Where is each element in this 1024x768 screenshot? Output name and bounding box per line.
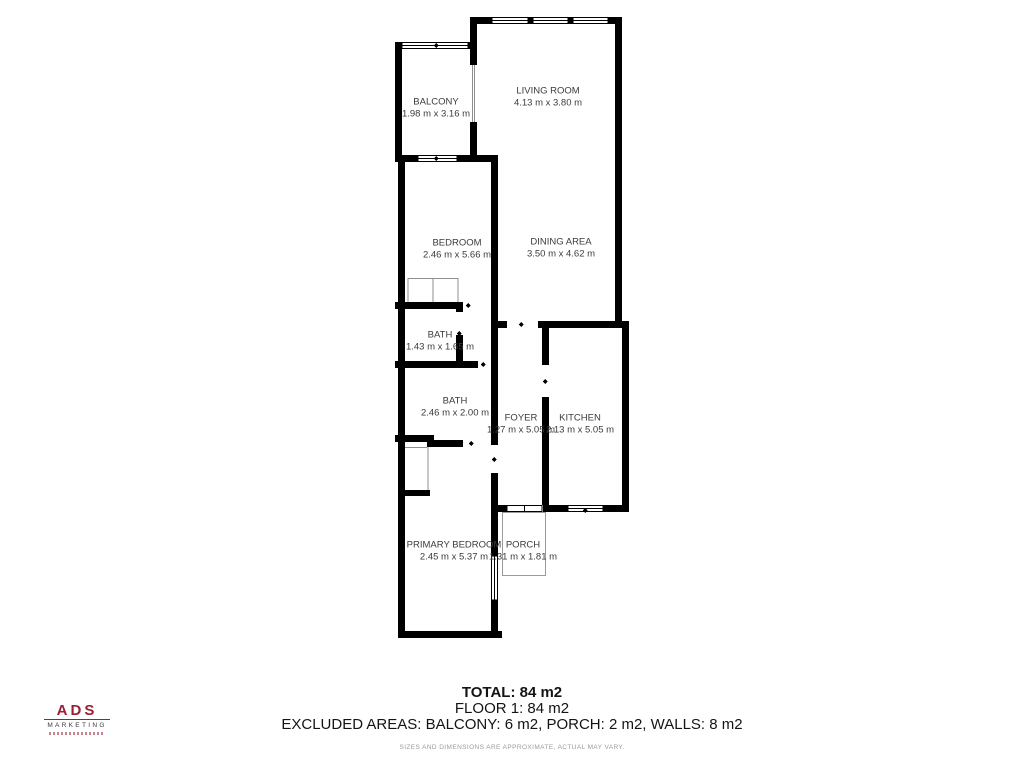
- room-dimensions: 1.27 m x 5.05 m: [487, 424, 555, 436]
- room-name: BEDROOM: [423, 238, 491, 250]
- room-label-dining-area: DINING AREA3.50 m x 4.62 m: [527, 237, 595, 260]
- total-area: TOTAL: 84 m2: [0, 685, 1024, 701]
- room-label-bath: BATH1.43 m x 1.65 m: [406, 330, 474, 353]
- room-label-bedroom: BEDROOM2.46 m x 5.66 m: [423, 238, 491, 261]
- logo-name: ADS: [44, 703, 110, 718]
- room-dimensions: 3.50 m x 4.62 m: [527, 248, 595, 260]
- company-logo: ADS MARKETING: [44, 703, 110, 735]
- room-dimensions: 1.31 m x 1.81 m: [489, 551, 557, 563]
- room-name: BATH: [406, 330, 474, 342]
- room-label-primary-bedroom: PRIMARY BEDROOM2.45 m x 5.37 m: [407, 540, 502, 563]
- room-label-living-room: LIVING ROOM4.13 m x 3.80 m: [514, 86, 582, 109]
- room-dimensions: 2.45 m x 5.37 m: [407, 551, 502, 563]
- floor-plan-page: BALCONY1.98 m x 3.16 mLIVING ROOM4.13 m …: [0, 0, 1024, 768]
- floor-plan-drawing: [0, 0, 1024, 768]
- window: [573, 18, 608, 24]
- logo-subtitle: MARKETING: [44, 719, 110, 730]
- room-label-foyer: FOYER1.27 m x 5.05 m: [487, 413, 555, 436]
- room-label-kitchen: KITCHEN2.13 m x 5.05 m: [546, 413, 614, 436]
- area-summary: TOTAL: 84 m2 FLOOR 1: 84 m2 EXCLUDED ARE…: [0, 685, 1024, 733]
- room-dimensions: 1.98 m x 3.16 m: [402, 108, 470, 120]
- room-dimensions: 2.46 m x 2.00 m: [421, 407, 489, 419]
- room-name: FOYER: [487, 413, 555, 425]
- room-name: PORCH: [489, 540, 557, 552]
- room-dimensions: 4.13 m x 3.80 m: [514, 97, 582, 109]
- room-name: BALCONY: [402, 97, 470, 109]
- room-label-bath: BATH2.46 m x 2.00 m: [421, 396, 489, 419]
- closet-outline: [405, 279, 458, 491]
- room-dimensions: 1.43 m x 1.65 m: [406, 341, 474, 353]
- room-name: BATH: [421, 396, 489, 408]
- floor-area: FLOOR 1: 84 m2: [0, 701, 1024, 717]
- room-name: KITCHEN: [546, 413, 614, 425]
- room-dimensions: 2.46 m x 5.66 m: [423, 249, 491, 261]
- window: [492, 556, 498, 600]
- disclaimer-text: SIZES AND DIMENSIONS ARE APPROXIMATE, AC…: [0, 744, 1024, 751]
- room-label-porch: PORCH1.31 m x 1.81 m: [489, 540, 557, 563]
- logo-tagline: [49, 732, 105, 735]
- room-name: DINING AREA: [527, 237, 595, 249]
- room-dimensions: 2.13 m x 5.05 m: [546, 424, 614, 436]
- room-name: PRIMARY BEDROOM: [407, 540, 502, 552]
- entry-door: [507, 506, 542, 512]
- excluded-areas: EXCLUDED AREAS: BALCONY: 6 m2, PORCH: 2 …: [0, 717, 1024, 733]
- room-label-balcony: BALCONY1.98 m x 3.16 m: [402, 97, 470, 120]
- window: [533, 18, 568, 24]
- window: [492, 18, 528, 24]
- sliding-door: [470, 65, 477, 122]
- room-name: LIVING ROOM: [514, 86, 582, 98]
